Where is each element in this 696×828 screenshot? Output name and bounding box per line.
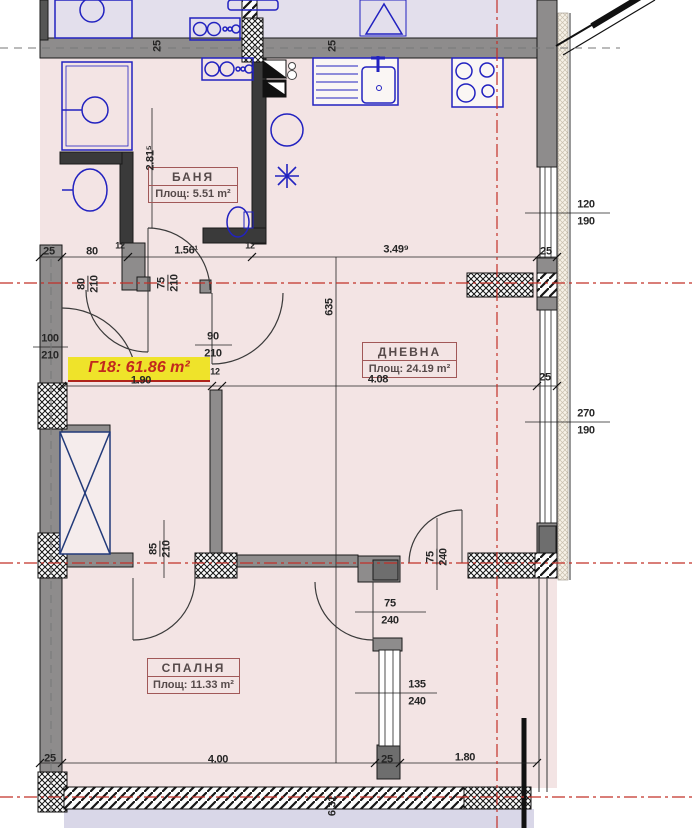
- dimension-label: 12: [115, 242, 124, 251]
- dimension-label: 270: [577, 409, 594, 420]
- dimension-label: 25: [328, 40, 339, 52]
- room-name: СПАЛНЯ: [148, 659, 239, 677]
- dimension-label: 12: [210, 368, 219, 377]
- dimension-label: 80: [86, 247, 98, 258]
- window-bedroom: [379, 650, 400, 746]
- room-label-bedroom: СПАЛНЯ Площ: 11.33 m²: [147, 658, 240, 694]
- floor-drain-icon: [275, 164, 299, 188]
- dimension-label: 135: [408, 680, 425, 691]
- dimension-label: 75240: [424, 546, 449, 567]
- dimension-label: 75: [384, 599, 396, 610]
- wardrobe-icon: [60, 432, 110, 554]
- floor-plan: БАНЯ Площ: 5.51 m² ДНЕВНА Площ: 24.19 m²…: [0, 0, 696, 828]
- dimension-label: 635: [325, 298, 336, 315]
- room-area: Площ: 11.33 m²: [148, 677, 239, 693]
- dimension-label: 120: [577, 200, 594, 211]
- dimension-label: 85210: [147, 538, 172, 559]
- window-right-upper: [540, 167, 557, 258]
- room-area: Площ: 5.51 m²: [149, 186, 237, 202]
- insulation-strip: [558, 13, 568, 580]
- dimension-label: 3.49⁹: [383, 245, 408, 256]
- neighbor-unit-top-floor: [40, 0, 557, 40]
- dimension-label: 190: [577, 217, 594, 228]
- dimension-label: 100: [41, 334, 58, 345]
- dimension-label: 25: [43, 247, 55, 258]
- dimension-label: 25: [381, 755, 393, 766]
- dimension-label: 25: [539, 373, 551, 384]
- dimension-label: 1.90: [131, 376, 151, 387]
- kitchen-counter-icon: [313, 58, 398, 105]
- dimension-label: 12: [245, 242, 254, 251]
- window-right-lower: [540, 310, 557, 523]
- dimension-label: 4.00: [208, 755, 228, 766]
- dimension-label: 1.80: [455, 753, 475, 764]
- room-name: БАНЯ: [149, 168, 237, 186]
- stove-icon: [452, 58, 503, 107]
- dimension-label: 75210: [155, 272, 180, 293]
- dimension-label: 240: [381, 616, 398, 627]
- dimension-label: 210: [204, 349, 221, 360]
- dimension-label: 1.56¹: [174, 246, 198, 257]
- neighbor-unit-bottom-floor: [64, 809, 534, 828]
- dimension-label: 80210: [75, 273, 100, 294]
- dimension-label: 6.31: [328, 796, 339, 816]
- room-name: ДНЕВНА: [363, 343, 456, 361]
- dimension-label: 190: [577, 426, 594, 437]
- dimension-label: 25: [540, 247, 552, 258]
- dimension-label: 25: [44, 754, 56, 765]
- dimension-label: 4.08: [368, 375, 388, 386]
- dimension-label: 210: [41, 351, 58, 362]
- dimension-label: 240: [408, 697, 425, 708]
- dimension-label: 2.81⁵: [146, 145, 157, 170]
- dimension-label: 90: [207, 332, 219, 343]
- room-label-bathroom: БАНЯ Площ: 5.51 m²: [148, 167, 238, 203]
- dimension-label: 25: [153, 40, 164, 52]
